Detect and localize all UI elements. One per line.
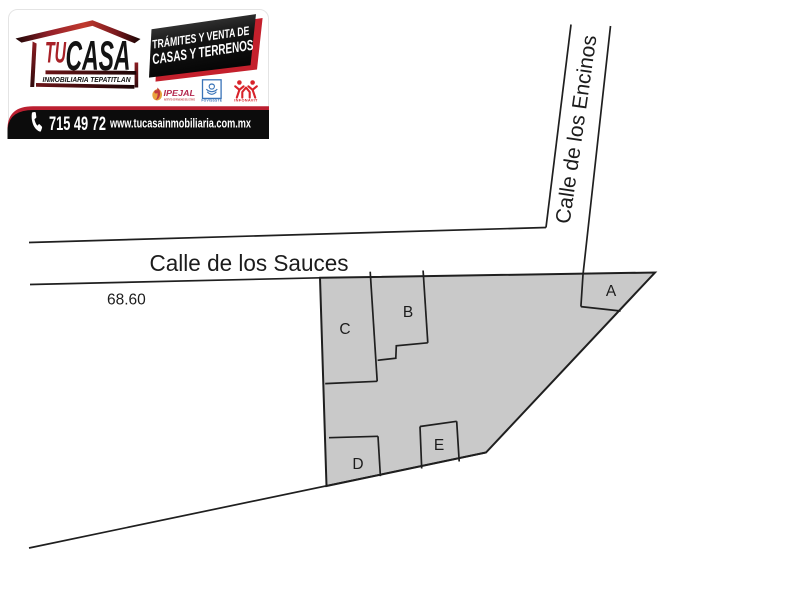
svg-text:FOVISSSTE: FOVISSSTE [201, 99, 222, 103]
svg-text:www.tucasainmobiliaria.com.mx: www.tucasainmobiliaria.com.mx [109, 116, 251, 131]
svg-text:Calle de los Sauces: Calle de los Sauces [150, 250, 349, 276]
svg-text:D: D [352, 456, 363, 473]
svg-text:IPEJAL: IPEJAL [164, 88, 196, 98]
svg-text:E: E [434, 437, 444, 454]
svg-text:B: B [403, 304, 413, 321]
svg-text:INMOBILIARIA TEPATITLAN: INMOBILIARIA TEPATITLAN [43, 75, 132, 84]
svg-text:INSTITUTO DE PENSIONES DEL EST: INSTITUTO DE PENSIONES DEL ESTADO [164, 97, 195, 101]
svg-text:A: A [606, 283, 617, 300]
svg-text:715 49 72: 715 49 72 [49, 113, 106, 135]
svg-text:C: C [339, 321, 350, 338]
svg-text:68.60: 68.60 [107, 292, 146, 309]
svg-text:TU: TU [45, 37, 67, 70]
svg-text:INFONAVIT: INFONAVIT [234, 97, 258, 102]
